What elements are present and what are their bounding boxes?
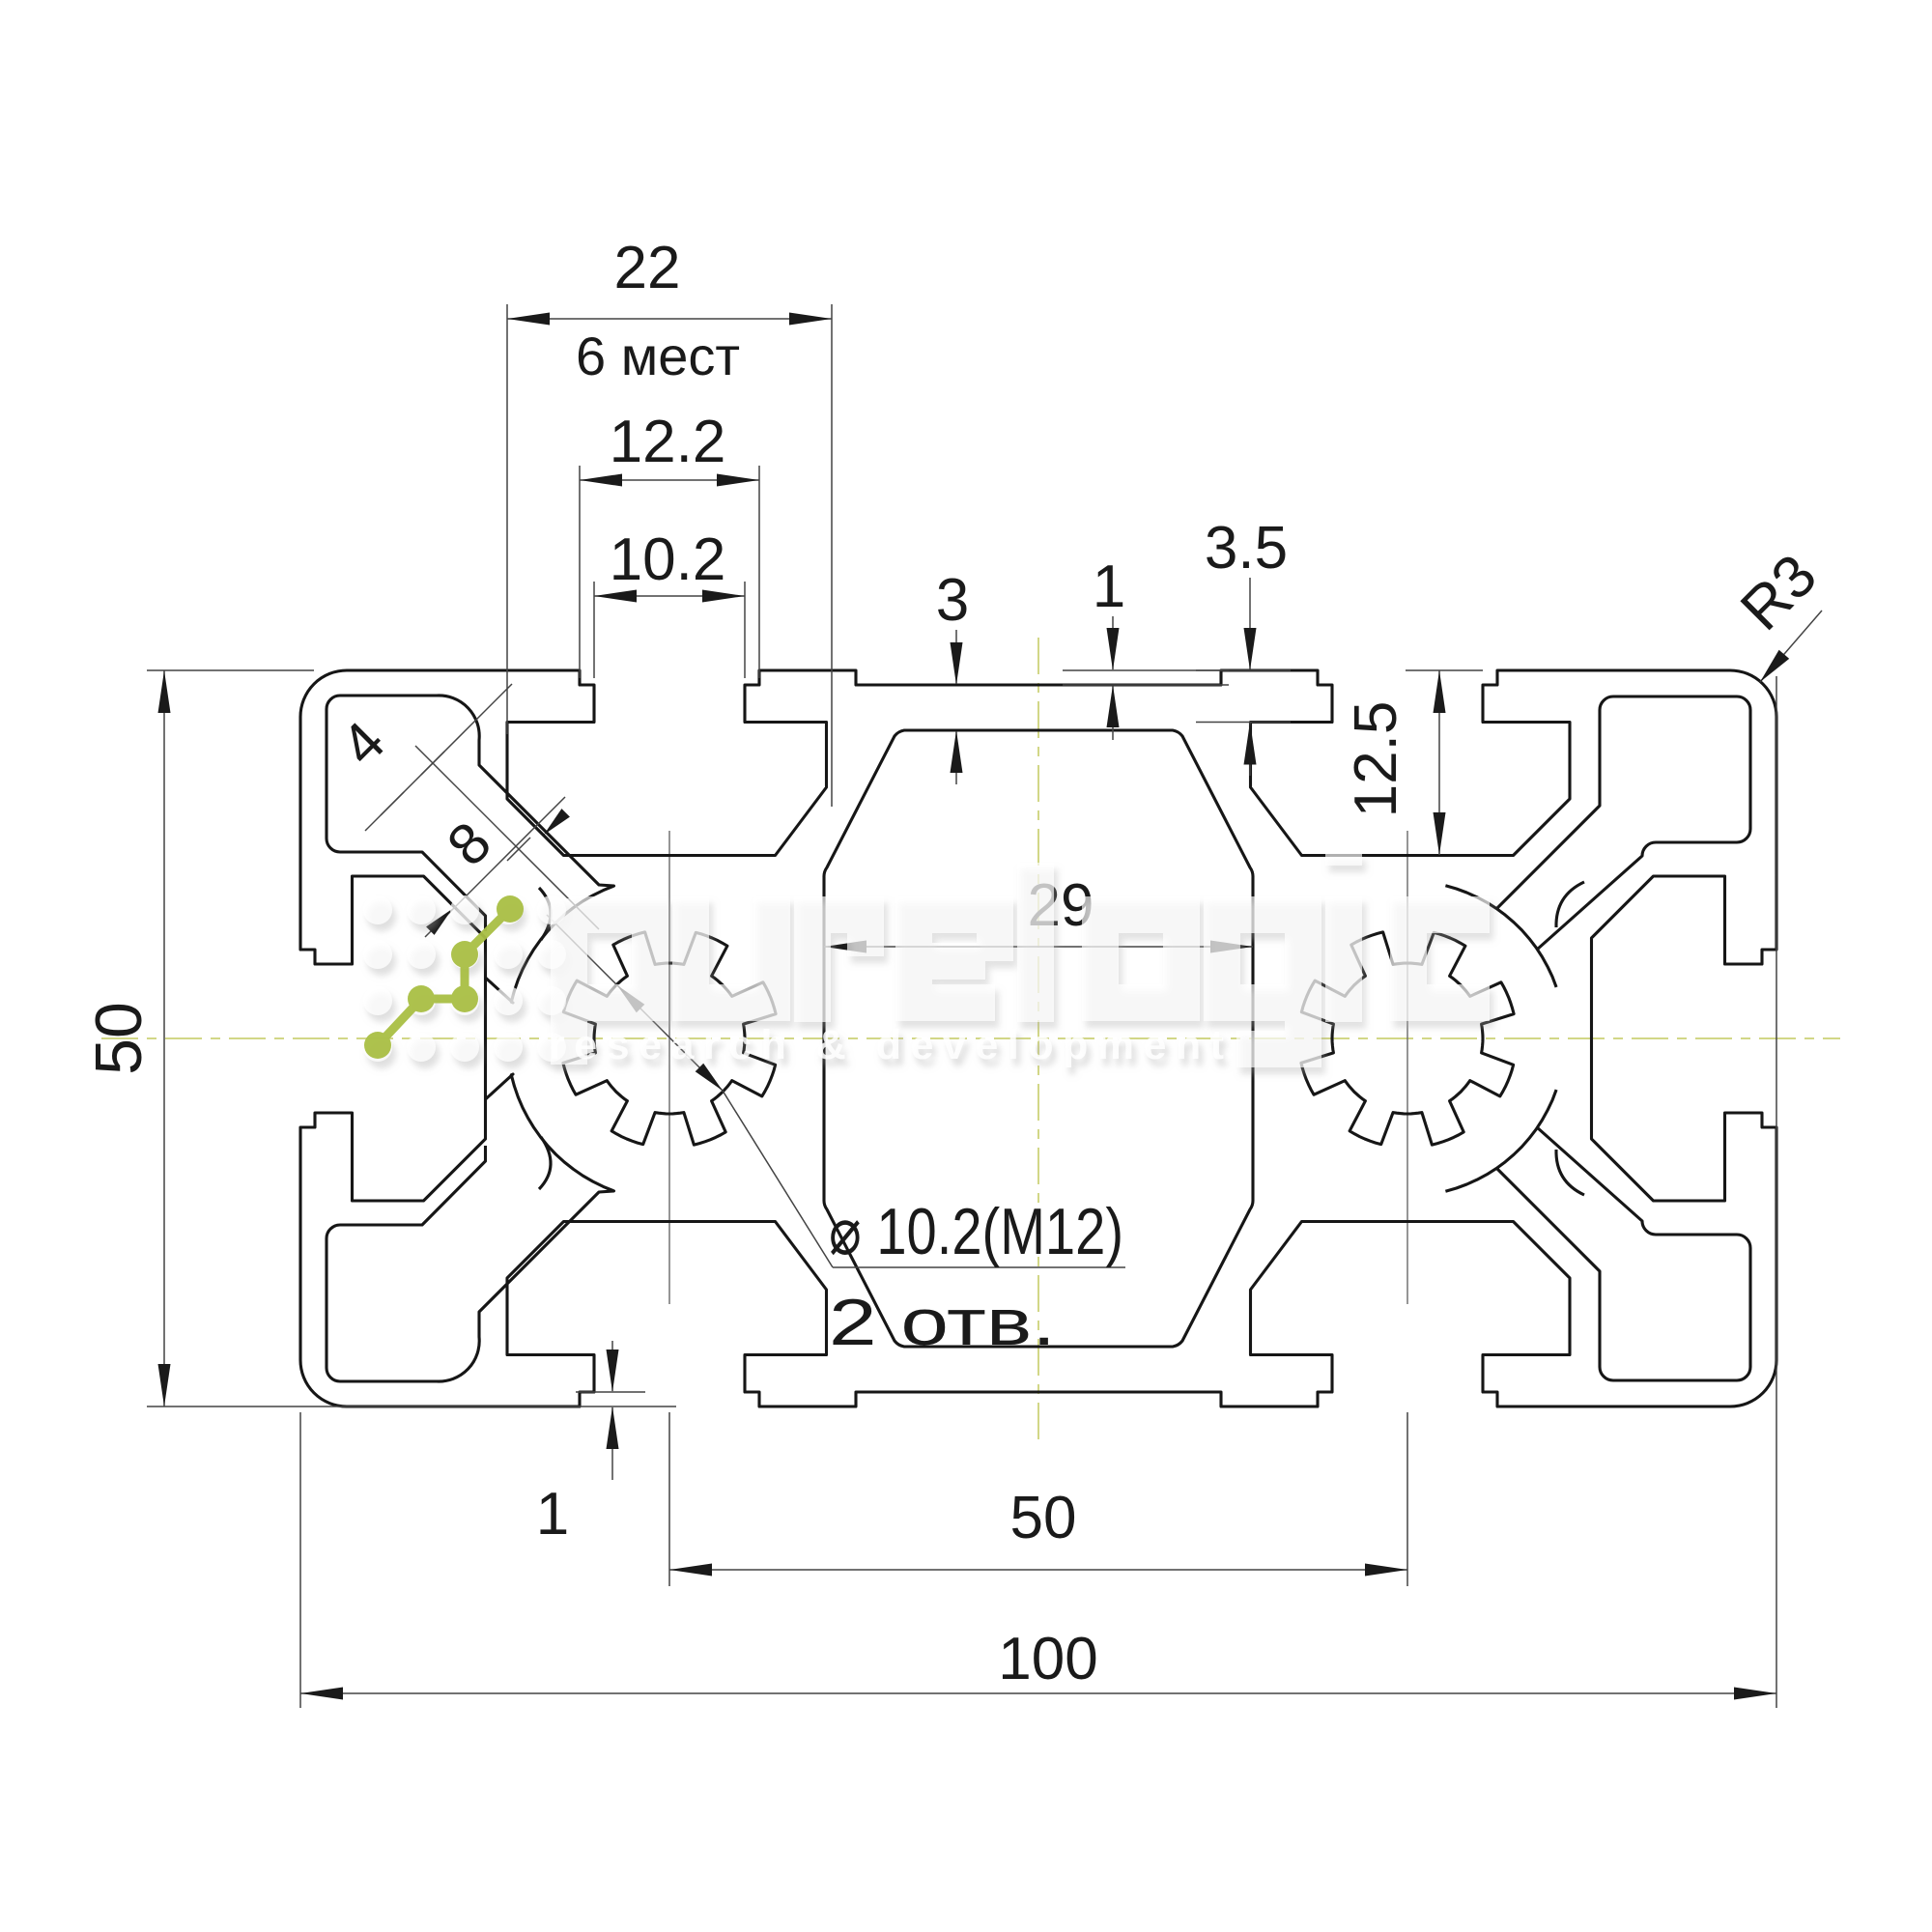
svg-text:22: 22	[614, 235, 681, 301]
svg-text:50: 50	[1010, 1485, 1077, 1551]
svg-text:3.5: 3.5	[1205, 515, 1288, 582]
svg-text:research & development: research & development	[549, 1022, 1233, 1068]
svg-text:12.5: 12.5	[1343, 701, 1409, 818]
svg-text:3: 3	[936, 567, 969, 634]
svg-text:50: 50	[82, 1002, 156, 1075]
svg-text:2 отв.: 2 отв.	[829, 1286, 1056, 1359]
svg-text:6 мест: 6 мест	[576, 326, 740, 386]
svg-text:1: 1	[1093, 554, 1125, 620]
svg-text:100: 100	[998, 1626, 1097, 1692]
svg-text:1: 1	[536, 1481, 569, 1548]
svg-text:12.2: 12.2	[610, 409, 726, 475]
svg-text:10.2: 10.2	[610, 526, 726, 593]
svg-text:⌀ 10.2(М12): ⌀ 10.2(М12)	[829, 1195, 1123, 1268]
